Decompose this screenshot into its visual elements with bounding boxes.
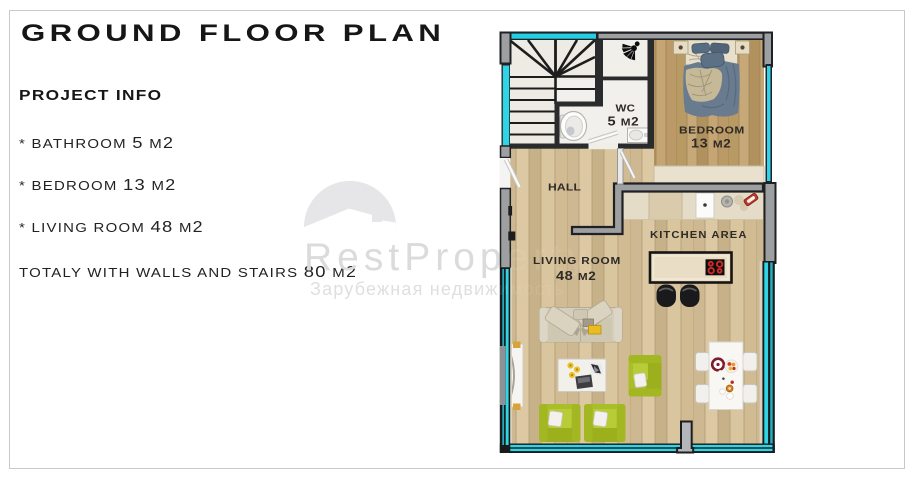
svg-text:HALL: HALL [548, 182, 581, 193]
svg-text:BEDROOM: BEDROOM [679, 125, 745, 136]
svg-text:Зарубежная недвижимость: Зарубежная недвижимость [310, 279, 565, 299]
svg-text:5 M2: 5 M2 [608, 114, 640, 128]
svg-text:48 M2: 48 M2 [556, 269, 596, 283]
svg-text:WC: WC [616, 103, 636, 114]
svg-text:13 M2: 13 M2 [691, 136, 731, 150]
svg-text:LIVING ROOM: LIVING ROOM [533, 256, 621, 267]
svg-text:KITCHEN AREA: KITCHEN AREA [650, 230, 748, 241]
